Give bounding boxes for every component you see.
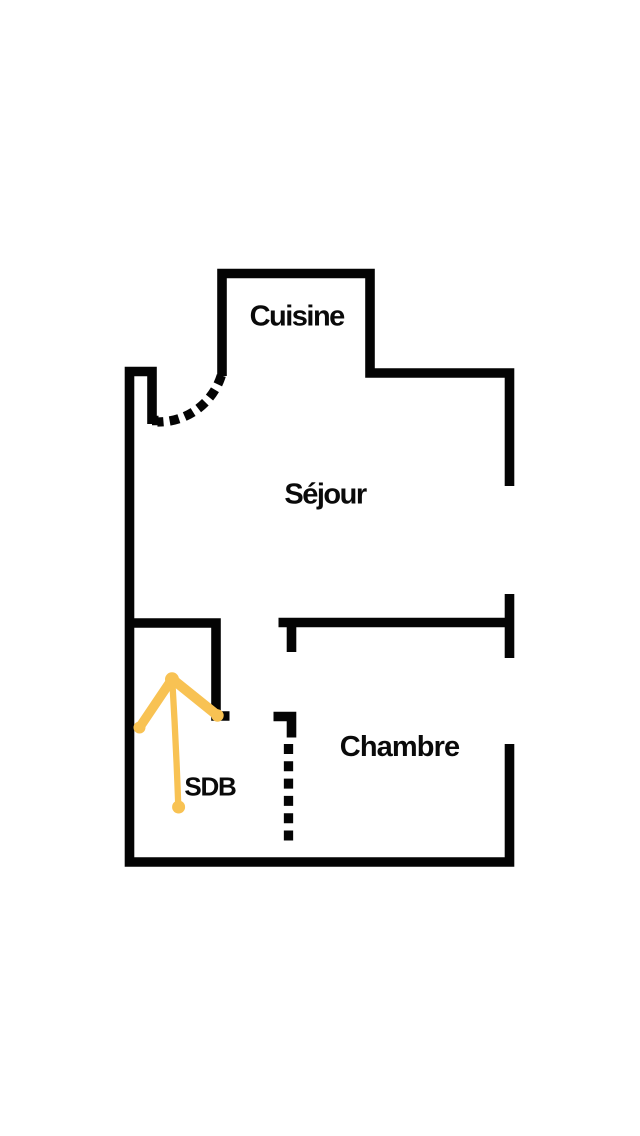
svg-text:Chambre: Chambre: [340, 731, 460, 763]
svg-text:Cuisine: Cuisine: [250, 301, 346, 333]
svg-text:Séjour: Séjour: [284, 479, 366, 511]
svg-text:SDB: SDB: [184, 772, 236, 802]
